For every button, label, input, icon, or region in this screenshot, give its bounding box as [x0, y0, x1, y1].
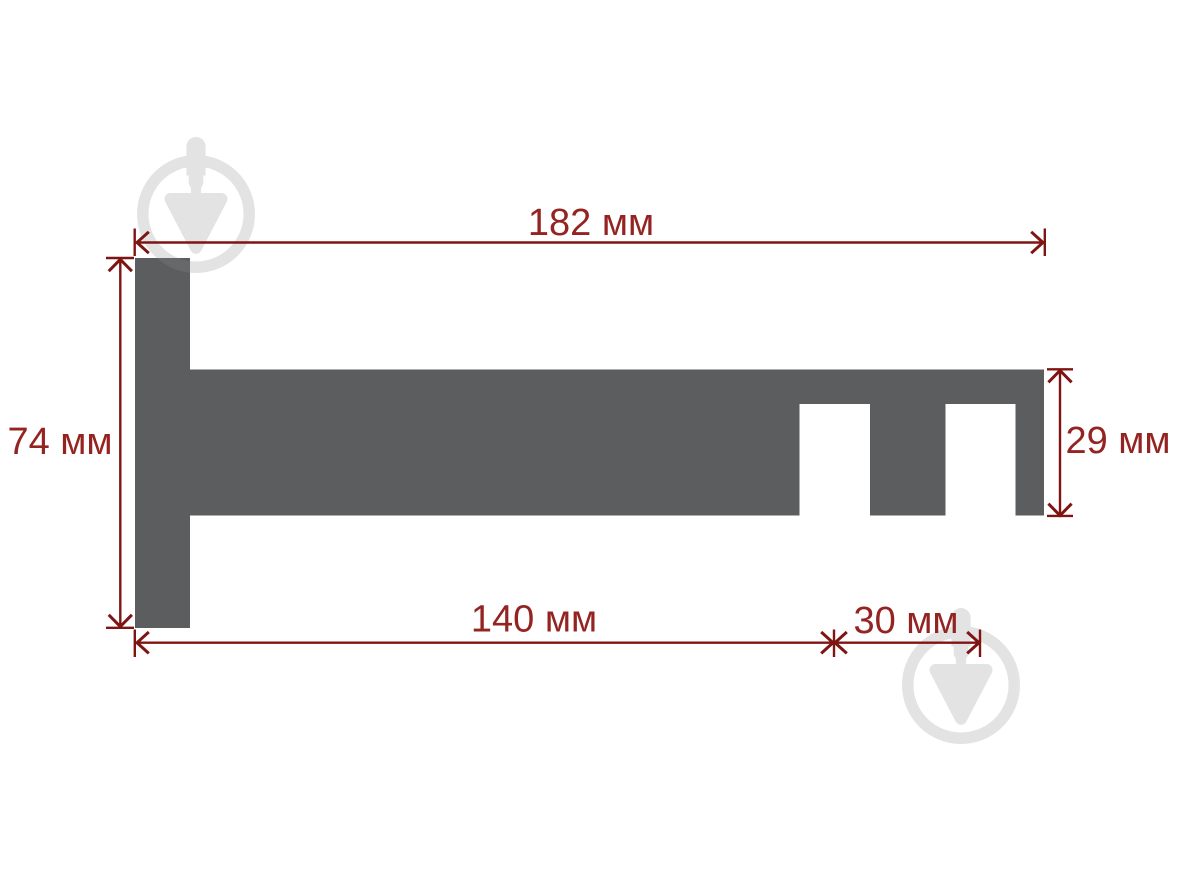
- svg-text:29 мм: 29 мм: [1065, 420, 1170, 462]
- svg-text:182 мм: 182 мм: [528, 202, 654, 244]
- svg-text:30 мм: 30 мм: [853, 600, 958, 642]
- svg-text:74 мм: 74 мм: [7, 421, 112, 463]
- svg-text:140 мм: 140 мм: [471, 599, 597, 641]
